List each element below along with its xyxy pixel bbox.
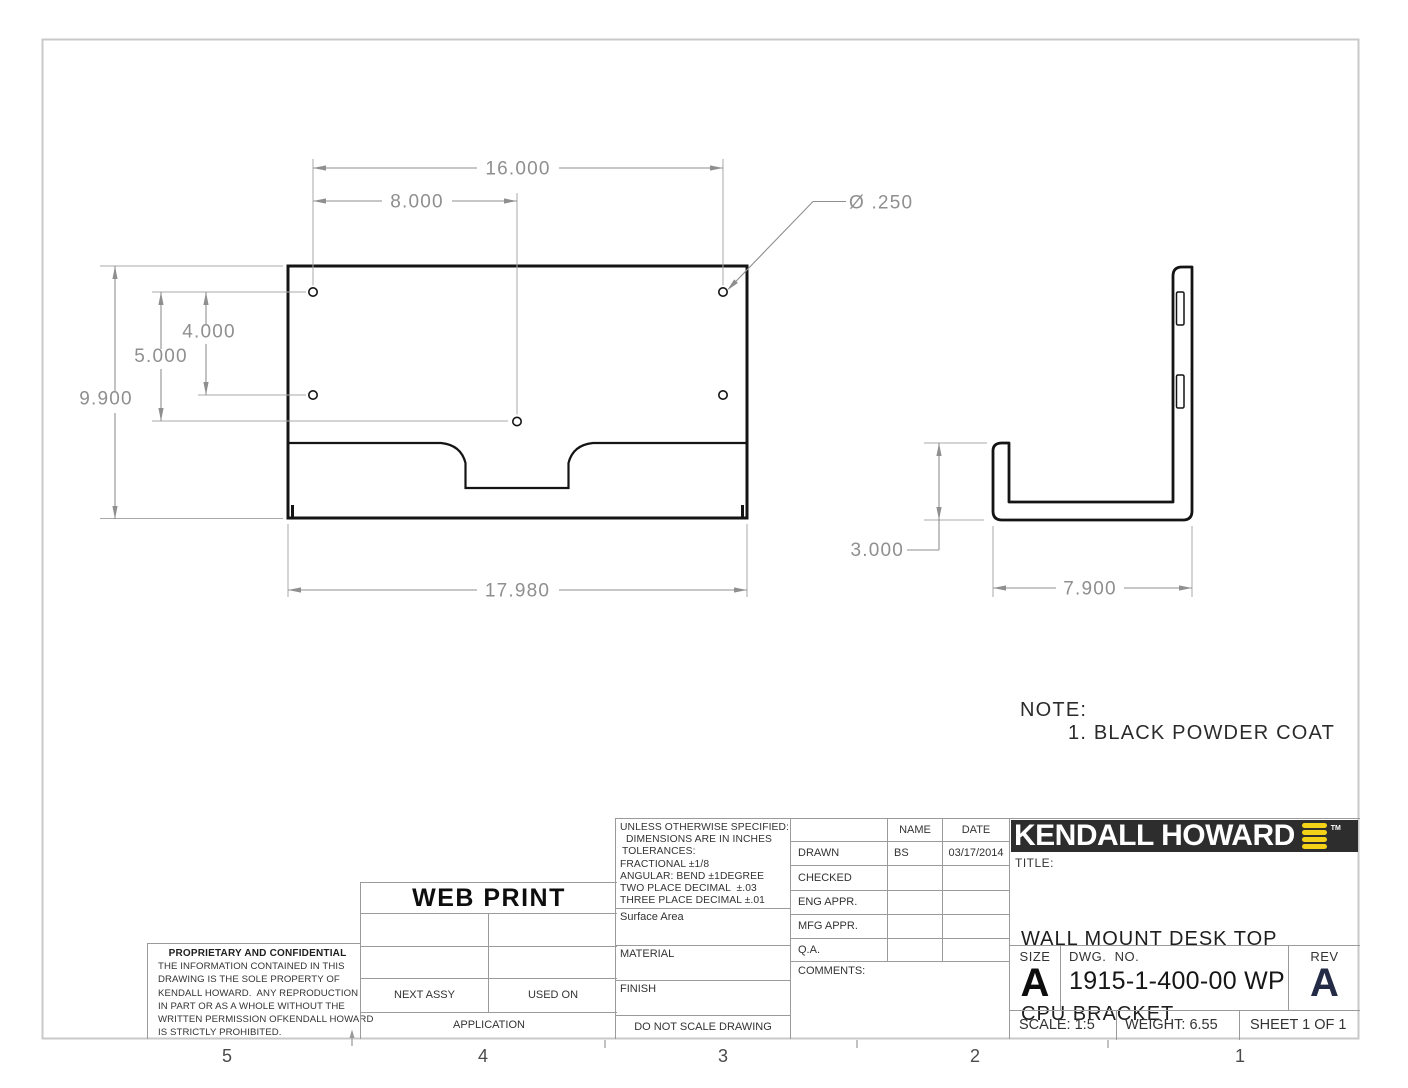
- material-cell: MATERIAL: [616, 946, 790, 981]
- dwg-number: 1915-1-400-00 WP: [1069, 967, 1288, 996]
- dim-offset-5: 5.000: [134, 346, 188, 367]
- role-label: MFG APPR.: [791, 915, 887, 938]
- application-empty-row: [361, 947, 617, 979]
- weight-value: WEIGHT: 6.55: [1116, 1011, 1239, 1040]
- spec-block: UNLESS OTHERWISE SPECIFIED: DIMENSIONS A…: [615, 818, 790, 1039]
- do-not-scale-label: DO NOT SCALE DRAWING: [616, 1016, 790, 1040]
- dim-hole-diameter: Ø .250: [849, 193, 913, 214]
- tolerance-line: DIMENSIONS ARE IN INCHES: [620, 834, 788, 846]
- name-header: NAME: [887, 819, 942, 841]
- application-empty-row: [361, 914, 617, 947]
- dim-lip-height: 3.000: [850, 540, 904, 561]
- brand-name: KENDALL HOWARD: [1014, 821, 1295, 851]
- title-block: KENDALL HOWARD TM TITLE: WALL MOUNT DESK…: [1009, 818, 1360, 1039]
- dim-offset-4: 4.000: [182, 322, 236, 343]
- tolerance-line: FRACTIONAL ±1/8: [620, 859, 788, 871]
- web-print-stamp: WEB PRINT: [361, 883, 617, 914]
- kendall-howard-logo: KENDALL HOWARD TM: [1011, 820, 1358, 852]
- sheet-value: SHEET 1 OF 1: [1239, 1011, 1360, 1040]
- role-label: Q.A.: [791, 939, 887, 961]
- tolerance-line: TWO PLACE DECIMAL ±.03: [620, 883, 788, 895]
- note-label: NOTE:: [1020, 699, 1087, 721]
- proprietary-notice: PROPRIETARY AND CONFIDENTIAL THE INFORMA…: [147, 943, 361, 1039]
- stacked-bars-icon: [1302, 823, 1327, 849]
- surface-area-cell: Surface Area: [616, 909, 790, 946]
- trademark-symbol: TM: [1331, 825, 1341, 832]
- date-header: DATE: [942, 819, 1009, 841]
- name-value: [887, 866, 942, 890]
- note-item: 1. BLACK POWDER COAT: [1068, 722, 1335, 744]
- used-on-value-cell: [489, 947, 617, 978]
- date-value: [942, 891, 1009, 914]
- dim-width: 17.980: [485, 581, 550, 602]
- name-value: BS: [887, 842, 942, 865]
- date-value: [942, 915, 1009, 938]
- rev-cell: REV A: [1288, 946, 1360, 1010]
- title-label: TITLE:: [1015, 856, 1054, 870]
- proprietary-line: DRAWING IS THE SOLE PROPERTY OF: [158, 973, 357, 986]
- dim-height: 9.900: [79, 389, 133, 410]
- table-row: DRAWN BS 03/17/2014: [791, 842, 1009, 866]
- next-assy-value-cell: [361, 914, 489, 946]
- scale-weight-sheet-row: SCALE: 1:5 WEIGHT: 6.55 SHEET 1 OF 1: [1010, 1010, 1360, 1040]
- tolerance-line: THREE PLACE DECIMAL ±.01: [620, 895, 788, 907]
- table-row: MFG APPR.: [791, 915, 1009, 939]
- date-value: [942, 939, 1009, 961]
- side-view: [993, 267, 1192, 520]
- used-on-label: USED ON: [489, 979, 617, 1012]
- date-value: 03/17/2014: [942, 842, 1009, 865]
- proprietary-line: IN PART OR AS A WHOLE WITHOUT THE: [158, 1000, 357, 1013]
- zone-number: 5: [222, 1046, 232, 1066]
- proprietary-line: THE INFORMATION CONTAINED IN THIS: [158, 960, 357, 973]
- role-label: CHECKED: [791, 866, 887, 890]
- tolerance-notes: UNLESS OTHERWISE SPECIFIED: DIMENSIONS A…: [616, 819, 790, 909]
- application-header-row: NEXT ASSY USED ON: [361, 979, 617, 1013]
- zone-number: 3: [718, 1046, 728, 1066]
- application-label: APPLICATION: [361, 1013, 617, 1039]
- approval-role-header: [791, 819, 887, 841]
- dim-hole-half-span: 8.000: [390, 192, 444, 213]
- drawing-sheet: 16.000 8.000 Ø .250 9.900 5.000 4.000 17…: [0, 0, 1408, 1088]
- table-row: ENG APPR.: [791, 891, 1009, 915]
- proprietary-line: KENDALL HOWARD. ANY REPRODUCTION: [158, 987, 357, 1000]
- name-value: [887, 891, 942, 914]
- comments-label: COMMENTS:: [791, 962, 1009, 1040]
- material-label: MATERIAL: [620, 948, 674, 960]
- table-row: Q.A.: [791, 939, 1009, 962]
- name-value: [887, 915, 942, 938]
- zone-number: 2: [970, 1046, 980, 1066]
- application-table: WEB PRINT NEXT ASSY USED ON APPLICATION: [360, 882, 617, 1039]
- finish-cell: FINISH: [616, 981, 790, 1016]
- finish-label: FINISH: [620, 983, 656, 995]
- size-cell: SIZE A: [1010, 946, 1060, 1010]
- dwg-label: DWG. NO.: [1069, 946, 1288, 964]
- size-value: A: [1010, 964, 1060, 1002]
- next-assy-value-cell: [361, 947, 489, 978]
- role-label: ENG APPR.: [791, 891, 887, 914]
- size-dwg-rev-row: SIZE A DWG. NO. 1915-1-400-00 WP REV A: [1010, 945, 1360, 1010]
- date-value: [942, 866, 1009, 890]
- role-label: DRAWN: [791, 842, 887, 865]
- proprietary-line: IS STRICTLY PROHIBITED.: [158, 1026, 357, 1039]
- approval-header-row: NAME DATE: [791, 819, 1009, 842]
- dim-depth: 7.900: [1063, 579, 1117, 600]
- tolerance-line: UNLESS OTHERWISE SPECIFIED:: [620, 822, 788, 834]
- tolerance-line: TOLERANCES:: [620, 846, 788, 858]
- zone-number: 4: [478, 1046, 488, 1066]
- rev-value: A: [1289, 964, 1360, 1002]
- proprietary-line: WRITTEN PERMISSION OFKENDALL HOWARD: [158, 1013, 357, 1026]
- dim-hole-span: 16.000: [485, 159, 550, 180]
- tolerance-line: ANGULAR: BEND ±1DEGREE: [620, 871, 788, 883]
- approval-table: NAME DATE DRAWN BS 03/17/2014 CHECKED EN…: [790, 818, 1009, 1039]
- note: NOTE: 1. BLACK POWDER COAT: [1020, 699, 1335, 744]
- next-assy-label: NEXT ASSY: [361, 979, 489, 1012]
- name-value: [887, 939, 942, 961]
- dwg-cell: DWG. NO. 1915-1-400-00 WP: [1060, 946, 1288, 1010]
- scale-value: SCALE: 1:5: [1010, 1011, 1116, 1040]
- used-on-value-cell: [489, 914, 617, 946]
- proprietary-heading: PROPRIETARY AND CONFIDENTIAL: [158, 947, 357, 960]
- table-row: CHECKED: [791, 866, 1009, 891]
- surface-area-label: Surface Area: [620, 911, 684, 923]
